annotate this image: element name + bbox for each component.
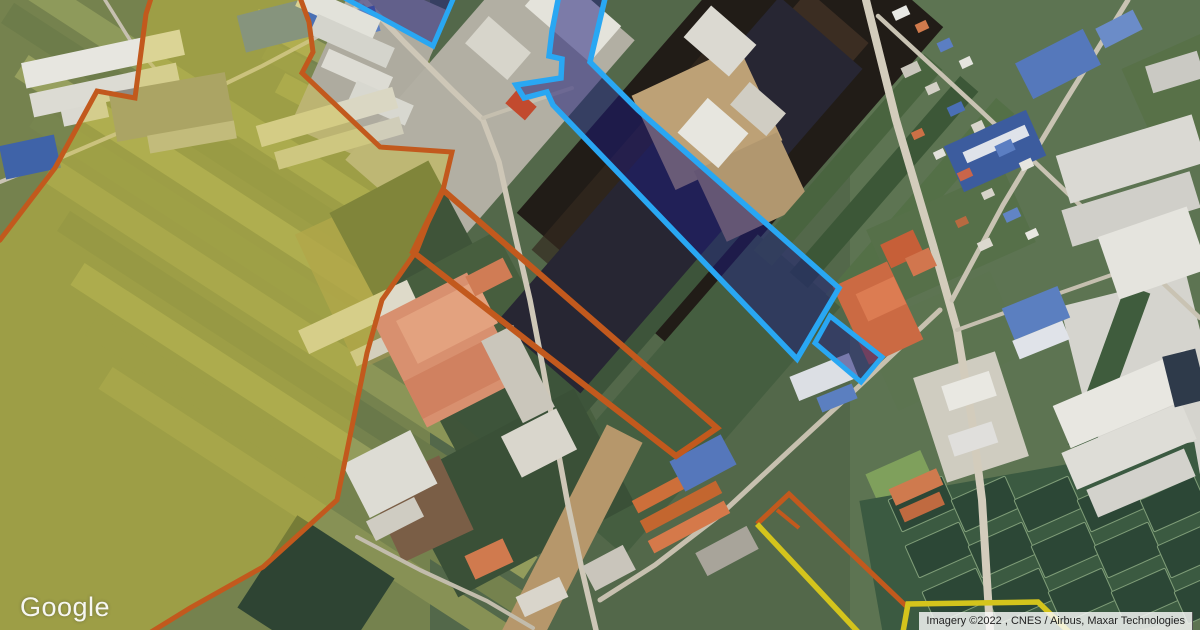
warehouse bbox=[343, 430, 438, 518]
blue-roof bbox=[1015, 29, 1101, 99]
google-logo[interactable]: Google bbox=[20, 592, 110, 623]
blue-roof bbox=[1095, 10, 1142, 49]
house bbox=[955, 216, 969, 228]
house bbox=[925, 82, 941, 96]
red-roof bbox=[465, 258, 512, 297]
house bbox=[892, 5, 911, 21]
house bbox=[915, 20, 930, 33]
satellite-map[interactable]: Google Imagery ©2022 , CNES / Airbus, Ma… bbox=[0, 0, 1200, 630]
warehouse bbox=[516, 577, 569, 617]
red-roof bbox=[464, 538, 513, 579]
warehouse bbox=[695, 526, 758, 576]
house bbox=[959, 56, 974, 69]
warehouse bbox=[465, 16, 531, 80]
warehouse bbox=[948, 421, 999, 456]
imagery-attribution: Imagery ©2022 , CNES / Airbus, Maxar Tec… bbox=[919, 612, 1193, 630]
house bbox=[1025, 228, 1039, 240]
warehouse bbox=[684, 5, 757, 76]
warehouse bbox=[582, 545, 636, 591]
house bbox=[947, 101, 966, 117]
warehouse bbox=[1145, 51, 1200, 94]
house bbox=[933, 148, 946, 160]
warehouse bbox=[501, 408, 577, 477]
house bbox=[981, 188, 995, 200]
house bbox=[901, 61, 922, 79]
attribution-text: Imagery ©2022 , CNES / Airbus, Maxar Tec… bbox=[926, 615, 1185, 627]
warehouse bbox=[941, 371, 997, 411]
house bbox=[1003, 207, 1022, 223]
house bbox=[937, 38, 954, 53]
house bbox=[977, 237, 993, 251]
house bbox=[911, 128, 925, 140]
